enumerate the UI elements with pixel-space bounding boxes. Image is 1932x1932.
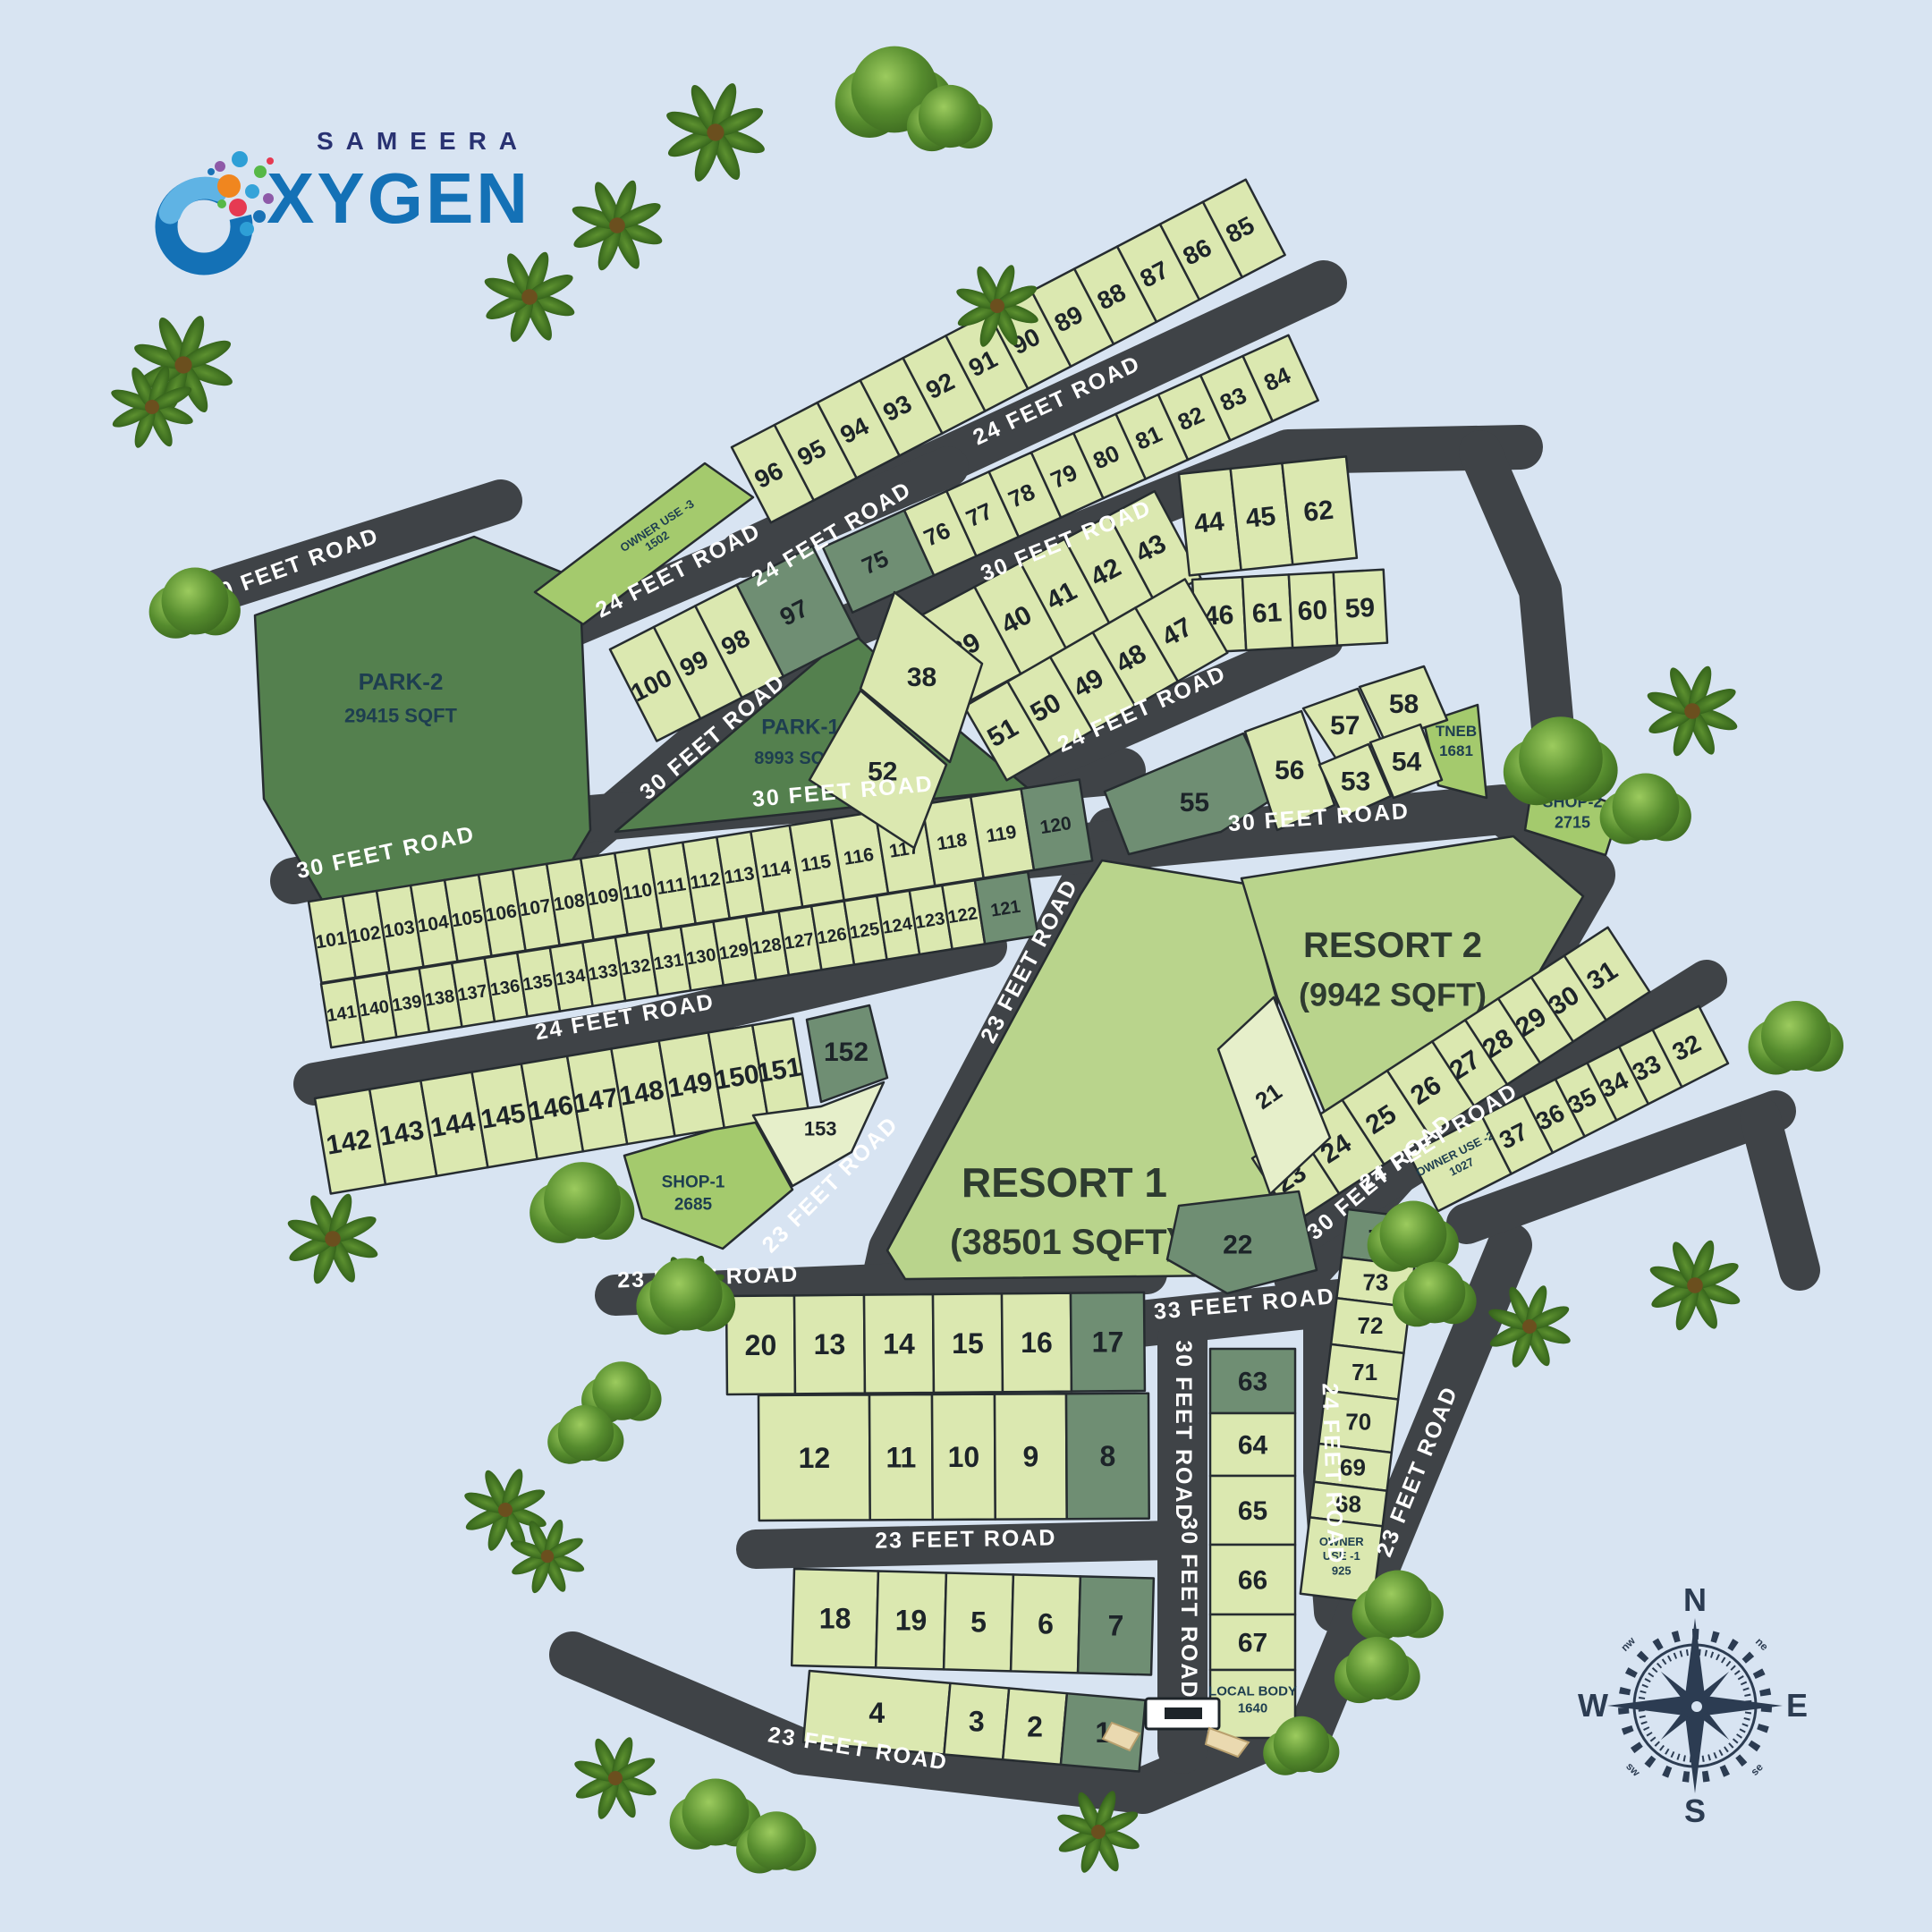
compass-west-label: W (1578, 1687, 1608, 1724)
plot-number-65: 65 (1238, 1496, 1267, 1526)
plot-number-55: 55 (1180, 788, 1209, 818)
road-label-20: 30 FEET ROAD (1176, 1517, 1201, 1699)
plot-number-60: 60 (1297, 596, 1328, 627)
area-label-localbody: LOCAL BODY (1208, 1684, 1297, 1699)
area-label-resort2: (9942 SQFT) (1299, 977, 1487, 1013)
compass-south-label: S (1684, 1792, 1706, 1829)
plot-number-152: 152 (824, 1038, 869, 1067)
compass-sw-label: sw (1623, 1760, 1643, 1780)
plot-number-71: 71 (1352, 1359, 1377, 1385)
plot-number-6: 6 (1038, 1608, 1054, 1640)
plot-number-16: 16 (1021, 1326, 1053, 1359)
area-label-shop1: SHOP-1 (662, 1174, 725, 1192)
plot-number-66: 66 (1238, 1566, 1267, 1596)
plot-number-62: 62 (1302, 496, 1335, 528)
plot-number-72: 72 (1357, 1312, 1383, 1339)
compass-ne-label: ne (1753, 1635, 1771, 1653)
entrance-gate-bar (1165, 1707, 1202, 1719)
plot-number-57: 57 (1330, 711, 1360, 741)
plot-number-59: 59 (1344, 593, 1376, 624)
plot-number-19: 19 (895, 1605, 928, 1637)
plot-number-17: 17 (1092, 1326, 1124, 1358)
area-label-localbody: 1640 (1238, 1700, 1267, 1716)
plot-number-73: 73 (1362, 1269, 1388, 1296)
palm-tree-icon (1648, 1238, 1742, 1333)
palm-tree-icon (572, 1735, 659, 1822)
plot-number-44: 44 (1192, 507, 1225, 539)
plot-number-11: 11 (885, 1441, 916, 1473)
plot-number-3: 3 (969, 1706, 985, 1738)
plot-number-54: 54 (1392, 748, 1422, 777)
plot-number-61: 61 (1251, 597, 1283, 629)
area-label-park2: PARK-2 (359, 668, 444, 695)
area-label-resort2: RESORT 2 (1303, 926, 1482, 965)
area-label-ou1: 925 (1332, 1563, 1352, 1577)
area-label-park1: PARK-1 (761, 715, 840, 739)
oxygen-o-icon (134, 141, 286, 293)
area-label-resort1: (38501 SQFT) (950, 1223, 1179, 1262)
area-label-tneb: TNEB (1436, 723, 1477, 740)
plot-number-22: 22 (1223, 1230, 1252, 1259)
palm-tree-icon (1645, 664, 1740, 758)
area-label-park2: 29415 SQFT (344, 705, 458, 727)
product-name: XYGEN (267, 157, 530, 240)
tree-icon (1504, 716, 1618, 805)
palm-tree-icon (664, 80, 767, 184)
compass-nw-label: nw (1618, 1634, 1638, 1654)
plot-number-4: 4 (869, 1697, 885, 1729)
plot-number-67: 67 (1238, 1629, 1267, 1658)
compass-hub-dot (1691, 1701, 1702, 1712)
tree-icon (530, 1162, 634, 1243)
plot-number-13: 13 (814, 1328, 846, 1360)
compass-rose: N S E W nw ne sw se (1578, 1581, 1808, 1829)
road-label-19: 30 FEET ROAD (1171, 1340, 1196, 1521)
plot-number-64: 64 (1238, 1431, 1268, 1461)
plot-number-153: 153 (804, 1117, 837, 1140)
compass-se-label: se (1748, 1760, 1766, 1778)
area-label-tneb: 1681 (1439, 742, 1473, 759)
area-label-shop1: 2685 (674, 1195, 713, 1214)
area-label-resort1: RESORT 1 (962, 1159, 1167, 1206)
brand-name: SAMEERA (317, 127, 530, 156)
road-label-16: 23 FEET ROAD (875, 1525, 1057, 1554)
plot-number-70: 70 (1345, 1408, 1371, 1435)
plot-number-63: 63 (1238, 1368, 1267, 1397)
plot-number-7: 7 (1108, 1610, 1124, 1642)
generated-map-layers: PARK-229415 SQFTPARK-18993 SQFTRESORT 1(… (109, 47, 1843, 1876)
logo: SAMEERA XYGEN (134, 114, 671, 311)
plot-number-38: 38 (907, 663, 936, 692)
plot-number-20: 20 (745, 1329, 777, 1361)
plot-number-15: 15 (952, 1327, 984, 1360)
plot-number-12: 12 (799, 1442, 831, 1474)
plot-number-2: 2 (1027, 1710, 1043, 1742)
plot-number-14: 14 (883, 1328, 915, 1360)
palm-tree-icon (285, 1191, 380, 1286)
plot-number-5: 5 (970, 1606, 987, 1639)
plot-number-45: 45 (1244, 501, 1277, 533)
plot-number-18: 18 (819, 1602, 852, 1634)
compass-east-label: E (1786, 1687, 1808, 1724)
road-18 (1760, 1118, 1800, 1270)
plot-number-9: 9 (1022, 1441, 1038, 1473)
tree-icon (1749, 1001, 1844, 1075)
plot-number-56: 56 (1275, 756, 1304, 785)
plot-number-53: 53 (1341, 767, 1370, 796)
plot-number-10: 10 (948, 1441, 980, 1473)
plot-number-8: 8 (1099, 1440, 1115, 1472)
plot-number-58: 58 (1389, 690, 1419, 719)
area-label-shop2: 2715 (1555, 814, 1590, 832)
compass-north-label: N (1683, 1581, 1707, 1618)
